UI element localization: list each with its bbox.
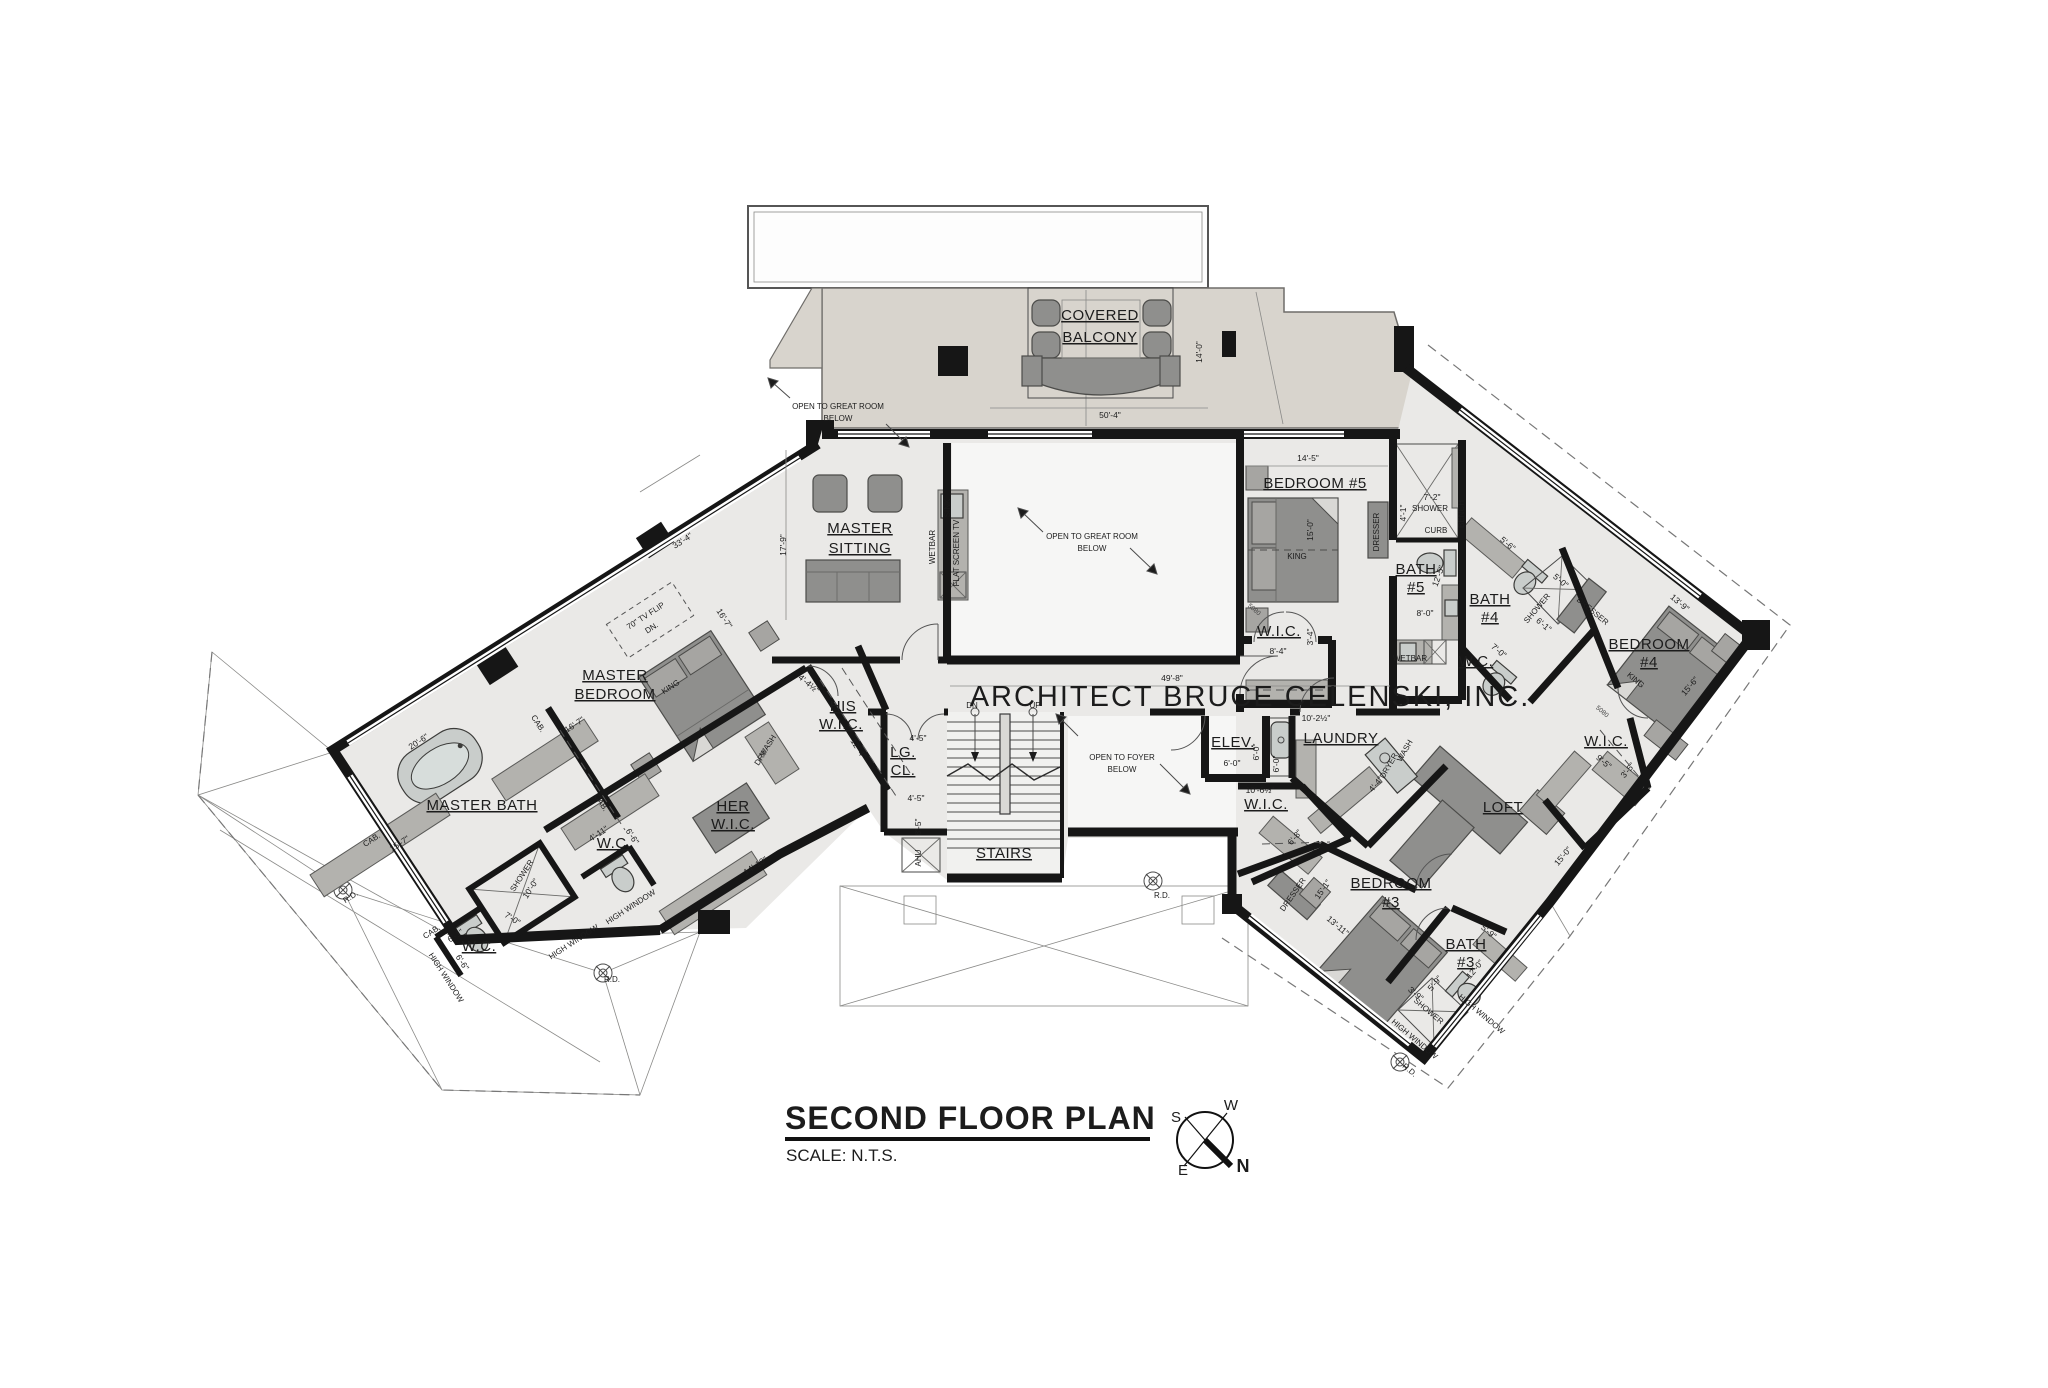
plan-label-anno: OPEN TO GREAT ROOM — [1046, 532, 1138, 541]
bed-icon — [1248, 498, 1338, 602]
plan-label-dim: 4'-1" — [1398, 505, 1408, 522]
plan-label-anno: OPEN TO FOYER — [1089, 753, 1155, 762]
plan-label-anno: R.D. — [604, 975, 620, 984]
plan-label-dim: 7'-2" — [1424, 492, 1441, 502]
plan-label-anno: WETBAR — [1393, 654, 1427, 663]
compass-s: S — [1171, 1109, 1181, 1126]
plan-label-anno: R.D. — [1401, 1061, 1419, 1078]
sheet-scale: SCALE: N.T.S. — [786, 1146, 897, 1165]
plan-label-room: LG. — [890, 744, 916, 761]
plan-label-room: BATH — [1446, 936, 1487, 953]
plan-label-anno: OPEN TO GREAT ROOM — [792, 402, 884, 411]
plan-label-anno: BELOW — [824, 414, 853, 423]
plan-label-room: BALCONY — [1062, 329, 1137, 346]
floor-plan-sheet: COVEREDBALCONY50'-4"14'-0"14'-5"MASTERSI… — [0, 0, 2048, 1388]
plan-label-room: MASTER BATH — [426, 797, 537, 814]
plan-label-room: ELEV. — [1211, 734, 1255, 751]
plan-label-anno: CURB — [1425, 526, 1448, 535]
plan-label-room: LOFT — [1483, 799, 1523, 816]
compass-n: N — [1237, 1156, 1250, 1176]
sofa-icon — [806, 560, 900, 602]
plan-label-anno: SHOWER — [1412, 504, 1448, 513]
plan-label-dim: 4'-5" — [908, 793, 925, 803]
plan-label-room: BATH — [1396, 561, 1437, 578]
plan-label-room: W.C. — [1459, 653, 1494, 670]
plan-label-room: W.I.C. — [1257, 623, 1301, 640]
plan-label-dim: 6'-0" — [1251, 744, 1261, 761]
plan-label-dim: 10'-2½" — [1302, 713, 1331, 723]
title-underline — [785, 1137, 1150, 1141]
floor-plan-canvas: COVEREDBALCONY50'-4"14'-0"14'-5"MASTERSI… — [0, 0, 2048, 1388]
plan-label-room: CL. — [891, 762, 916, 779]
plan-label-room: #4 — [1640, 654, 1658, 671]
plan-label-room: W.C. — [597, 835, 632, 852]
plan-label-dim: 8'-4" — [1270, 646, 1287, 656]
house-floor — [333, 372, 1748, 1058]
plan-label-room: MASTER — [582, 667, 648, 684]
chair-icon — [813, 475, 847, 512]
plan-label-room: MASTER — [827, 520, 893, 537]
plan-label-room: SITTING — [829, 540, 892, 557]
compass-rose: S W E N — [1171, 1097, 1250, 1179]
plan-label-dim: 14'-0" — [1194, 341, 1204, 363]
elevator-car-icon — [1271, 722, 1291, 758]
plan-label-room: HER — [716, 798, 749, 815]
plan-label-anno: AHU — [914, 849, 923, 866]
plan-label-anno: KING — [1287, 552, 1307, 561]
plan-label-room: #4 — [1481, 609, 1499, 626]
sheet-title: SECOND FLOOR PLAN — [785, 1100, 1156, 1136]
plan-label-room: #5 — [1407, 579, 1425, 596]
plan-label-anno: R.D. — [1154, 891, 1170, 900]
compass-e: E — [1178, 1162, 1188, 1179]
plan-label-room: BEDROOM — [1608, 636, 1689, 653]
plan-label-room: W.I.C. — [1584, 733, 1628, 750]
plan-label-dim: 6'-0" — [1224, 758, 1241, 768]
foyer-roof-below — [840, 886, 1248, 1006]
plan-label-room: W.I.C. — [819, 716, 863, 733]
architect-banner: ARCHITECT BRUCE CELENSKI, INC. — [970, 681, 1531, 713]
chair-icon — [868, 475, 902, 512]
plan-label-anno: DRESSER — [1372, 512, 1381, 551]
plan-label-room: LAUNDRY — [1304, 730, 1379, 747]
plan-label-room: HIS — [830, 698, 857, 715]
plan-label-room: W.I.C. — [1244, 796, 1288, 813]
plan-label-dim: 15'-0" — [1305, 519, 1315, 541]
plan-label-room: BEDROOM #5 — [1263, 475, 1366, 492]
plan-label-room: STAIRS — [976, 845, 1032, 862]
plan-label-anno: BELOW — [1108, 765, 1137, 774]
plan-label-room: W.I.C. — [711, 816, 755, 833]
plan-label-dim: 17'-9" — [778, 534, 788, 556]
plan-label-dim: 4'-5" — [910, 733, 927, 743]
plan-label-dim: 3'-4" — [1305, 629, 1315, 646]
plan-label-anno: FLAT SCREEN TV — [952, 519, 961, 586]
compass-needle — [1205, 1140, 1231, 1166]
plan-label-room: BATH — [1470, 591, 1511, 608]
plan-label-dim: 8'-5" — [913, 819, 923, 836]
plan-label-dim: 50'-4" — [1099, 410, 1121, 420]
plan-label-room: BEDROOM — [1350, 875, 1431, 892]
plan-label-room: BEDROOM — [574, 686, 655, 703]
plan-label-anno: BENCH — [1457, 500, 1466, 528]
plan-label-dim: 10'-6½" — [1246, 785, 1275, 795]
plan-label-dim: 8'-0" — [1417, 608, 1434, 618]
plan-label-dim: 14'-5" — [1297, 453, 1319, 463]
plan-label-room: #3 — [1382, 894, 1400, 911]
plan-label-anno: BELOW — [1078, 544, 1107, 553]
plan-label-room: COVERED — [1061, 307, 1139, 324]
plan-label-dim: 6'-0" — [1271, 756, 1281, 773]
compass-w: W — [1224, 1097, 1239, 1114]
plan-label-room: W.C. — [462, 938, 497, 955]
plan-label-anno: SINK — [943, 498, 952, 517]
title-block: SECOND FLOOR PLAN SCALE: N.T.S. — [785, 1100, 1156, 1165]
plan-label-anno: WETBAR — [928, 530, 937, 564]
